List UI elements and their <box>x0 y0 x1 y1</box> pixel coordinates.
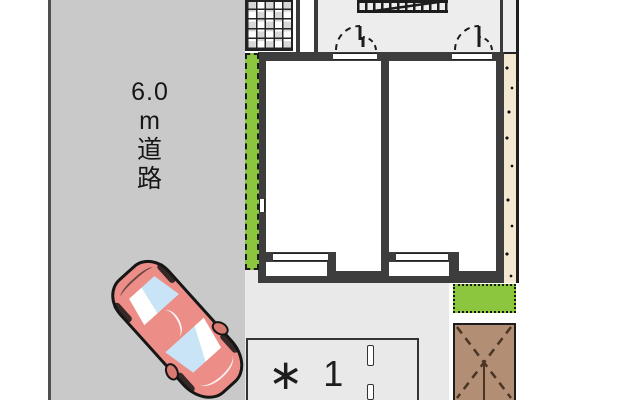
road-label-line: 6.0 <box>110 78 190 107</box>
wall-middle <box>381 52 389 283</box>
room-right-notch <box>459 252 496 271</box>
window-left-room <box>273 253 328 261</box>
site-border-line-right <box>516 0 519 283</box>
door-opening-right <box>452 53 492 60</box>
veranda-right <box>389 262 449 276</box>
parking-divider-dash <box>367 345 374 366</box>
site-plan-stage: 6.0 m 道 路 <box>0 0 640 400</box>
window-right-room <box>396 253 448 261</box>
road-label-line: m <box>110 107 190 136</box>
wall-right <box>496 52 504 283</box>
veranda-left <box>266 262 327 276</box>
wood-deck <box>453 323 516 400</box>
wall-left <box>258 52 266 283</box>
wall-stub-right <box>449 252 459 283</box>
parking-space-number: 1 <box>323 353 343 395</box>
road-label: 6.0 m 道 路 <box>110 78 190 208</box>
window-side-wall <box>259 199 265 212</box>
boundary-fence-line <box>296 0 300 52</box>
wall-stub-left <box>327 252 336 283</box>
side-passage-top <box>503 0 516 52</box>
road-label-line: 道 <box>110 136 190 165</box>
wall-notch-right <box>459 271 504 283</box>
tiled-walkway <box>245 0 293 51</box>
stair-direction-line <box>357 0 448 13</box>
deck-cross-icon <box>455 325 513 400</box>
hedge <box>245 53 259 270</box>
door-opening-left <box>333 53 377 60</box>
room-right <box>389 61 496 252</box>
gravel-strip <box>503 52 516 283</box>
planting-bed <box>453 284 516 313</box>
road-label-line: 路 <box>110 165 190 194</box>
room-left-notch <box>336 252 381 271</box>
parking-label: ∗ 1 <box>268 352 358 396</box>
staircase-icon <box>357 0 448 13</box>
door-swing-icons <box>318 13 503 53</box>
wall-notch-left <box>336 271 389 283</box>
parking-divider-dash <box>367 384 374 400</box>
parking-marker: ∗ <box>268 350 303 399</box>
room-left <box>266 61 381 252</box>
